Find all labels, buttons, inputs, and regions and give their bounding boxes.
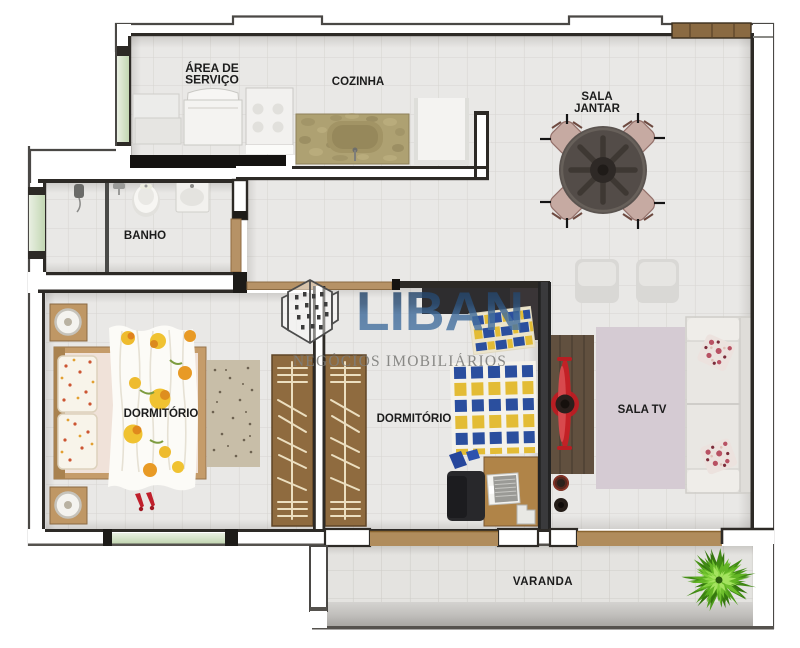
svg-text:BANHO: BANHO [124, 230, 166, 242]
svg-text:LIBAN: LIBAN [356, 280, 524, 342]
svg-text:SALA TV: SALA TV [618, 404, 667, 416]
svg-text:DORMITÓRIO: DORMITÓRIO [124, 407, 199, 420]
svg-text:COZINHA: COZINHA [332, 76, 384, 88]
svg-text:SERVIÇO: SERVIÇO [185, 73, 239, 87]
svg-text:SALA: SALA [581, 91, 612, 103]
svg-text:VARANDA: VARANDA [513, 576, 573, 588]
svg-text:DORMITÓRIO: DORMITÓRIO [377, 412, 452, 425]
svg-text:JANTAR: JANTAR [574, 103, 620, 115]
svg-text:NEGÓCIOS IMOBILIÁRIOS: NEGÓCIOS IMOBILIÁRIOS [293, 353, 507, 370]
